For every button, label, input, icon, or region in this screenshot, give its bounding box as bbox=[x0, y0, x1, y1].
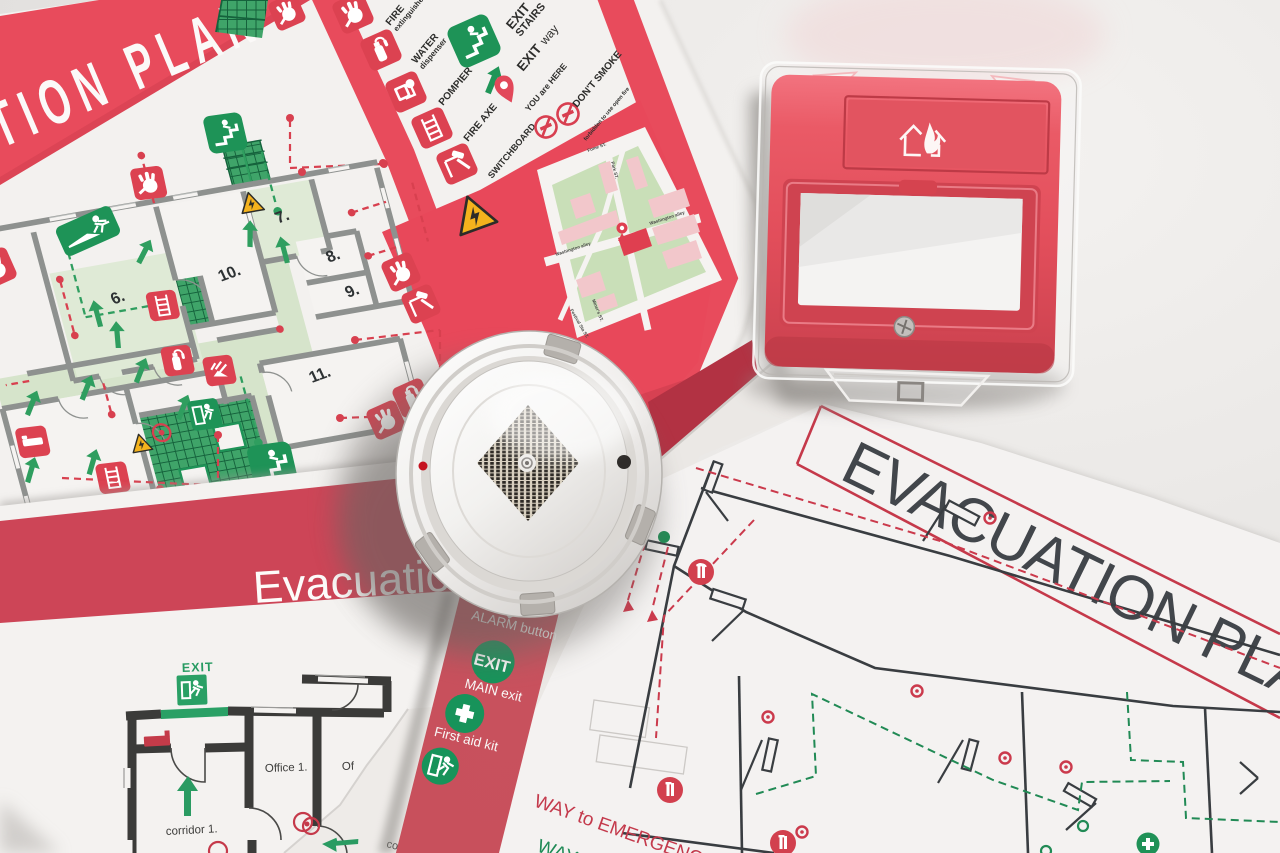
svg-text:Of: Of bbox=[342, 761, 355, 773]
svg-text:Office 1.: Office 1. bbox=[265, 762, 308, 775]
svg-text:EXIT: EXIT bbox=[182, 660, 214, 675]
